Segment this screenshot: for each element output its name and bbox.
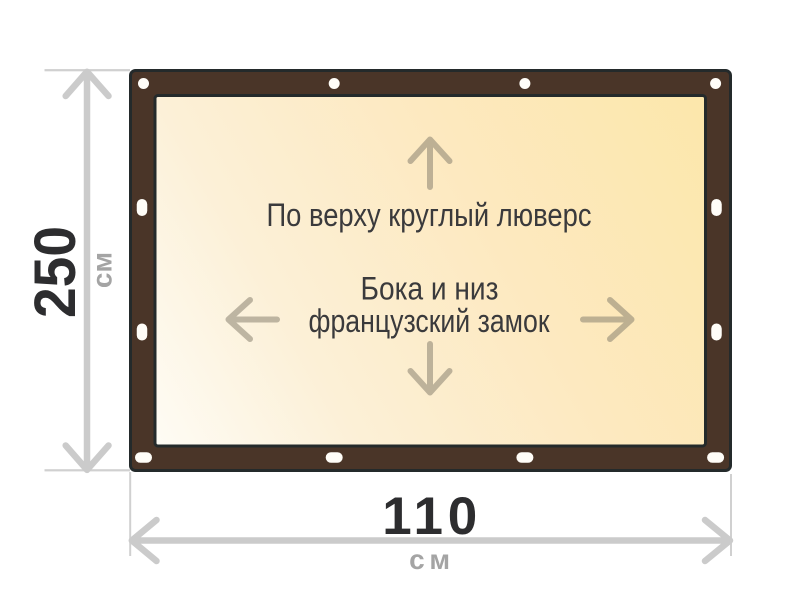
svg-text:110: 110	[382, 487, 477, 546]
svg-text:см: см	[409, 544, 450, 575]
svg-text:французский замок: французский замок	[309, 303, 551, 339]
svg-text:250: 250	[23, 226, 88, 318]
svg-text:см: см	[86, 252, 117, 288]
svg-text:Бока и низ: Бока и низ	[361, 271, 499, 307]
svg-text:По верху круглый люверс: По верху круглый люверс	[267, 197, 592, 233]
